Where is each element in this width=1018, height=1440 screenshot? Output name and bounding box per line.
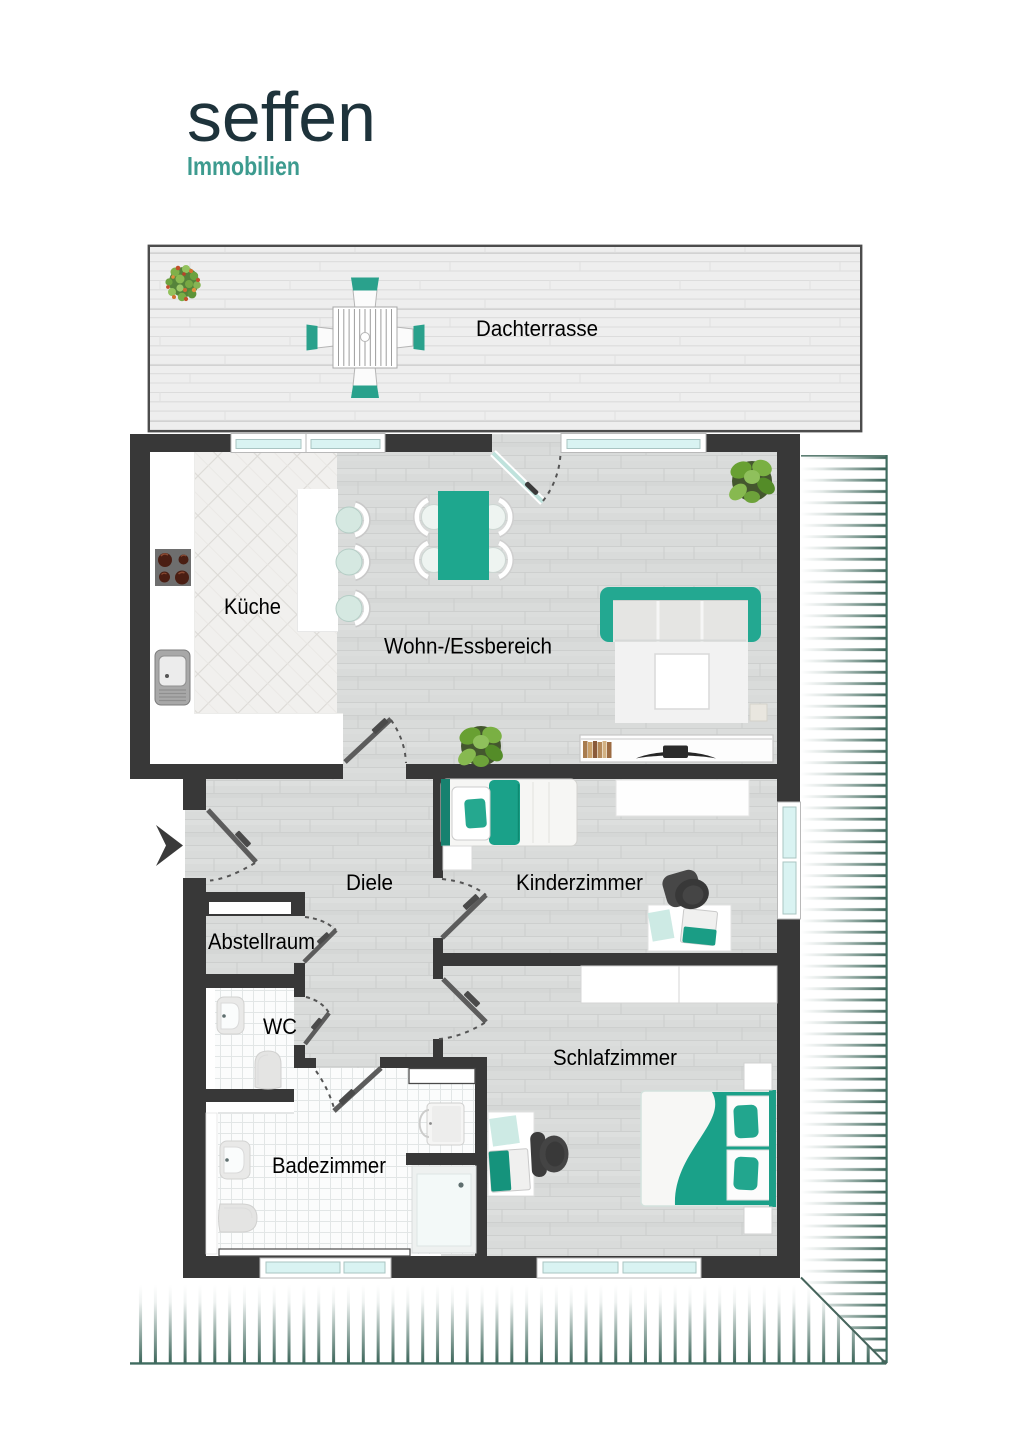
svg-text:Dachterrasse: Dachterrasse — [476, 316, 598, 341]
svg-text:Kinderzimmer: Kinderzimmer — [516, 870, 643, 895]
svg-text:Badezimmer: Badezimmer — [272, 1153, 386, 1178]
svg-text:Abstellraum: Abstellraum — [208, 929, 315, 954]
svg-text:Schlafzimmer: Schlafzimmer — [553, 1045, 677, 1070]
svg-text:Immobilien: Immobilien — [187, 151, 300, 181]
svg-text:Diele: Diele — [346, 870, 393, 895]
svg-text:seffen: seffen — [187, 78, 376, 156]
svg-text:Küche: Küche — [224, 594, 281, 619]
svg-text:Wohn-/Essbereich: Wohn-/Essbereich — [384, 634, 552, 659]
svg-text:WC: WC — [263, 1014, 297, 1039]
